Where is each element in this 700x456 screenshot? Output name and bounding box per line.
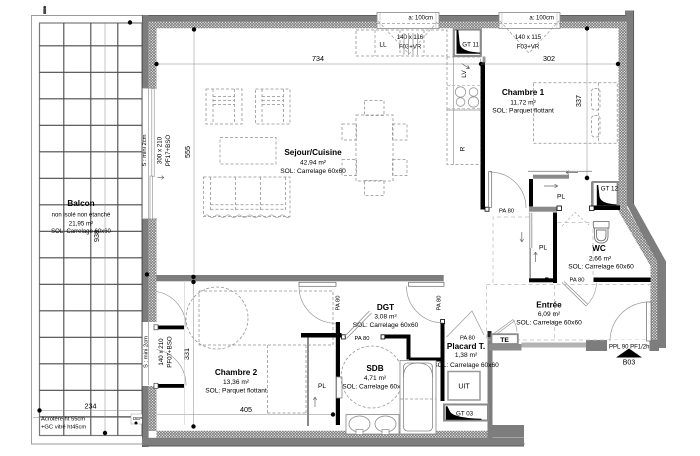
svg-text:SOL: Parquet flottant: SOL: Parquet flottant <box>205 388 267 395</box>
svg-text:PL: PL <box>557 194 565 201</box>
svg-text:Acrotère ht 55cm: Acrotère ht 55cm <box>41 417 85 423</box>
svg-text:6,09 m²: 6,09 m² <box>538 311 561 318</box>
svg-text:734: 734 <box>312 54 324 63</box>
svg-text:PA 80: PA 80 <box>354 336 369 342</box>
svg-text:PA 80: PA 80 <box>336 295 342 310</box>
svg-text:PA 80: PA 80 <box>499 209 514 215</box>
svg-text:Chambre 2: Chambre 2 <box>215 368 258 377</box>
svg-text:Placard T.: Placard T. <box>447 342 485 351</box>
svg-text:GT 03: GT 03 <box>456 411 474 418</box>
svg-text:234: 234 <box>85 402 97 411</box>
svg-text:TE: TE <box>500 337 509 344</box>
svg-text:PA 80: PA 80 <box>460 336 475 342</box>
svg-text:3,08 m²: 3,08 m² <box>374 314 397 321</box>
svg-text:PL: PL <box>539 245 547 252</box>
svg-text:PF17+BSO: PF17+BSO <box>165 135 172 167</box>
svg-text:SDB: SDB <box>366 364 383 373</box>
svg-text:a: 100cm: a: 100cm <box>529 16 554 22</box>
svg-text:LL: LL <box>379 42 387 49</box>
svg-text:Chambre 1: Chambre 1 <box>502 88 545 97</box>
svg-text:1,38 m²: 1,38 m² <box>455 352 478 359</box>
svg-text:Entrée: Entrée <box>536 301 562 310</box>
svg-text:938: 938 <box>92 230 101 242</box>
svg-text:SOL: Carrelage 60x60: SOL: Carrelage 60x60 <box>516 320 582 327</box>
svg-text:Balcon: Balcon <box>67 199 94 208</box>
svg-text:+GC vitré ht45cm: +GC vitré ht45cm <box>41 425 86 431</box>
svg-text:2,66 m²: 2,66 m² <box>589 256 612 263</box>
svg-text:11,72 m²: 11,72 m² <box>510 100 536 107</box>
svg-text:GT 12: GT 12 <box>601 185 619 192</box>
svg-text:SOL: Carrelage 60x60: SOL: Carrelage 60x60 <box>51 229 111 235</box>
svg-text:405: 405 <box>240 405 252 414</box>
svg-text:non isolé non étanché: non isolé non étanché <box>52 213 111 219</box>
svg-text:a: 100cm: a: 100cm <box>408 16 433 22</box>
svg-text:302: 302 <box>543 54 555 63</box>
svg-text:F03+VR: F03+VR <box>517 44 540 51</box>
svg-text:4,71 m²: 4,71 m² <box>364 375 387 382</box>
svg-text:PF07+BSO: PF07+BSO <box>167 336 174 368</box>
svg-text:WC: WC <box>592 244 606 253</box>
svg-text:300 x 210: 300 x 210 <box>157 136 164 164</box>
svg-text:337: 337 <box>574 95 583 107</box>
svg-text:21,95 m²: 21,95 m² <box>69 221 93 228</box>
svg-text:140 x 210: 140 x 210 <box>158 338 165 366</box>
svg-text:SOL: Parquet flottant: SOL: Parquet flottant <box>492 108 554 115</box>
svg-text:DGT: DGT <box>377 303 394 312</box>
svg-text:B03: B03 <box>623 360 636 367</box>
svg-text:SOL: Carrelage 60x60: SOL: Carrelage 60x60 <box>568 264 634 271</box>
svg-text:GT 11: GT 11 <box>462 41 479 48</box>
svg-text:R: R <box>460 146 467 151</box>
svg-text:SOL: Carrelage 60x60: SOL: Carrelage 60x60 <box>342 384 408 391</box>
svg-text:Sejour/Cuisine: Sejour/Cuisine <box>284 148 342 157</box>
svg-text:SOL: Carrelage 60x60: SOL: Carrelage 60x60 <box>280 168 346 175</box>
svg-text:PA 80: PA 80 <box>437 295 443 310</box>
svg-text:UIT: UIT <box>458 384 470 391</box>
svg-text:555: 555 <box>183 146 192 158</box>
svg-text:42,94 m²: 42,94 m² <box>300 160 327 167</box>
svg-text:140 x 115: 140 x 115 <box>515 34 542 41</box>
svg-text:140 x 116: 140 x 116 <box>397 34 424 41</box>
svg-text:SOL: Carrelage 60x60: SOL: Carrelage 60x60 <box>353 322 419 329</box>
svg-text:LV: LV <box>461 70 468 78</box>
svg-text:DEP: DEP <box>133 416 142 421</box>
svg-text:S : mini 2cm: S : mini 2cm <box>144 336 150 368</box>
svg-text:S : mini 2cm: S : mini 2cm <box>142 134 148 166</box>
svg-text:SOL: Carrelage 60x60: SOL: Carrelage 60x60 <box>433 362 499 369</box>
svg-text:PL: PL <box>318 383 326 390</box>
svg-text:331: 331 <box>182 348 191 360</box>
svg-text:13,36 m²: 13,36 m² <box>223 379 250 386</box>
svg-text:PA 80: PA 80 <box>569 278 584 284</box>
